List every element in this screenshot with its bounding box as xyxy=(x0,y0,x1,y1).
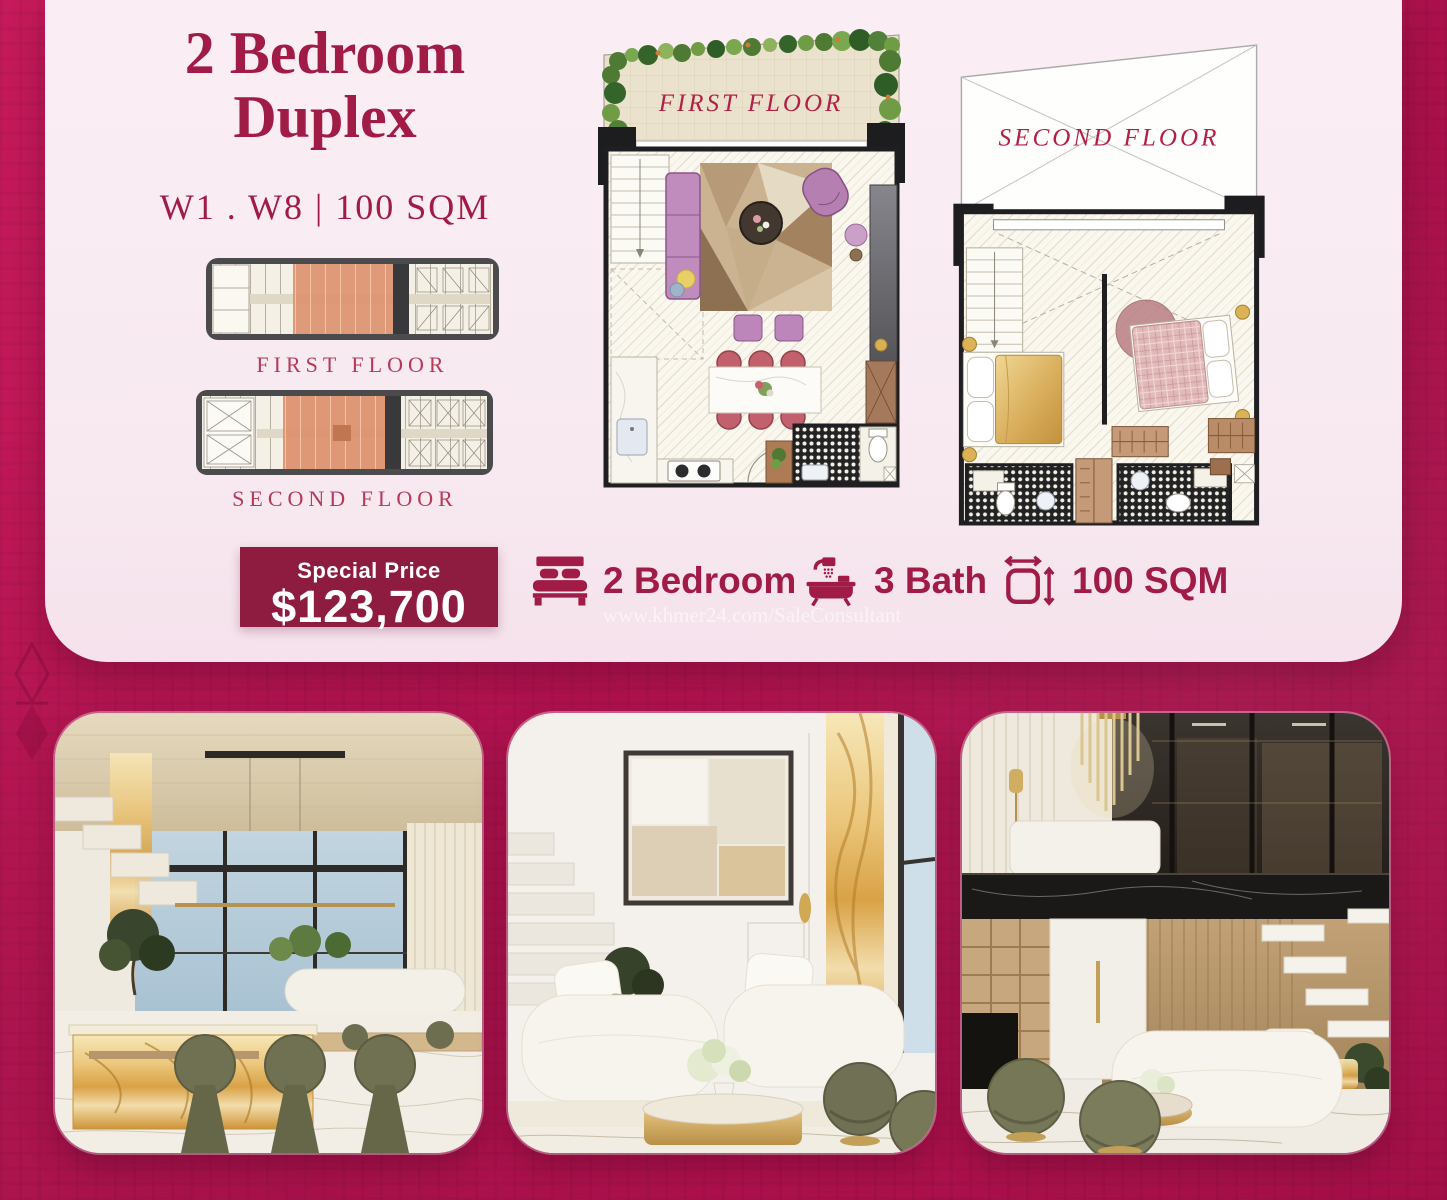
divider-wall xyxy=(1102,274,1107,425)
info-card: 2 Bedroom Duplex W1 . W8 | 100 SQM xyxy=(45,0,1402,662)
stairs xyxy=(611,155,669,263)
side-cabinet xyxy=(866,361,896,423)
feature-area: 100 SQM xyxy=(1003,552,1228,610)
feature-bath: 3 Bath xyxy=(803,552,987,610)
duplex-loft-render xyxy=(962,713,1389,1153)
title-line-1: 2 Bedroom xyxy=(103,22,547,86)
plan-first-floor-label: FIRST FLOOR xyxy=(658,90,844,117)
special-price-value: $123,700 xyxy=(240,581,498,633)
sofa-back xyxy=(285,969,465,1013)
bed-right xyxy=(1130,315,1239,411)
ottoman xyxy=(775,315,803,341)
mini-plan-first-floor-label: FIRST FLOOR xyxy=(205,352,500,378)
feature-bedroom-label: 2 Bedroom xyxy=(603,560,796,602)
watermark: www.khmer24.com/SaleConsultant xyxy=(557,603,947,628)
closet-column xyxy=(1076,459,1112,523)
photo-living-room xyxy=(508,713,935,1153)
feature-bath-label: 3 Bath xyxy=(874,560,987,602)
wall-sconce xyxy=(799,893,811,923)
floor-plan-first-floor: FIRST FLOOR xyxy=(598,26,905,492)
bathroom-left xyxy=(966,465,1071,523)
counter-stools xyxy=(175,1035,415,1153)
mini-plan-second-floor xyxy=(195,385,495,480)
linen-closet xyxy=(1235,465,1255,483)
bathroom xyxy=(794,425,897,483)
title-line-2: Duplex xyxy=(103,86,547,150)
living-room-render xyxy=(508,713,935,1153)
lamp xyxy=(875,339,887,351)
bed-left xyxy=(963,352,1063,446)
reading-chair xyxy=(845,224,867,246)
photo-duplex-loft xyxy=(962,713,1389,1153)
feature-bedroom: 2 Bedroom xyxy=(532,552,796,610)
storage-box xyxy=(1210,459,1230,475)
plan-second-floor-label: SECOND FLOOR xyxy=(999,124,1220,151)
beam xyxy=(994,220,1225,230)
page-title: 2 Bedroom Duplex xyxy=(103,22,547,149)
wardrobe xyxy=(1112,427,1168,457)
bed-icon xyxy=(532,556,588,606)
marble-parapet xyxy=(962,873,1389,919)
plant-console xyxy=(766,441,792,483)
dining-area-render xyxy=(55,713,482,1153)
mini-plan-second-floor-label: SECOND FLOOR xyxy=(195,486,495,512)
ottoman xyxy=(734,315,762,341)
feature-area-label: 100 SQM xyxy=(1072,560,1228,602)
bath-icon xyxy=(803,555,859,607)
area-icon xyxy=(1003,555,1057,607)
nightstand xyxy=(962,448,976,462)
stairs xyxy=(966,248,1022,352)
special-price-badge: Special Price $123,700 xyxy=(240,547,498,627)
mezzanine-bed xyxy=(1010,821,1160,875)
nightstand xyxy=(962,337,976,351)
flyer-canvas: 2 Bedroom Duplex W1 . W8 | 100 SQM xyxy=(0,0,1447,1200)
coffee-table xyxy=(740,202,782,244)
sofa xyxy=(666,173,700,299)
dining-set xyxy=(709,351,821,429)
wardrobe xyxy=(1208,419,1254,453)
floor-plan-second-floor: SECOND FLOOR xyxy=(953,33,1265,530)
unit-subtitle: W1 . W8 | 100 SQM xyxy=(103,186,547,228)
nightstand xyxy=(1236,305,1250,319)
wall-art xyxy=(626,753,791,903)
tv-wall xyxy=(870,185,897,361)
photo-dining-area xyxy=(55,713,482,1153)
mini-plan-first-floor xyxy=(205,252,500,345)
brand-emblem xyxy=(12,642,52,762)
